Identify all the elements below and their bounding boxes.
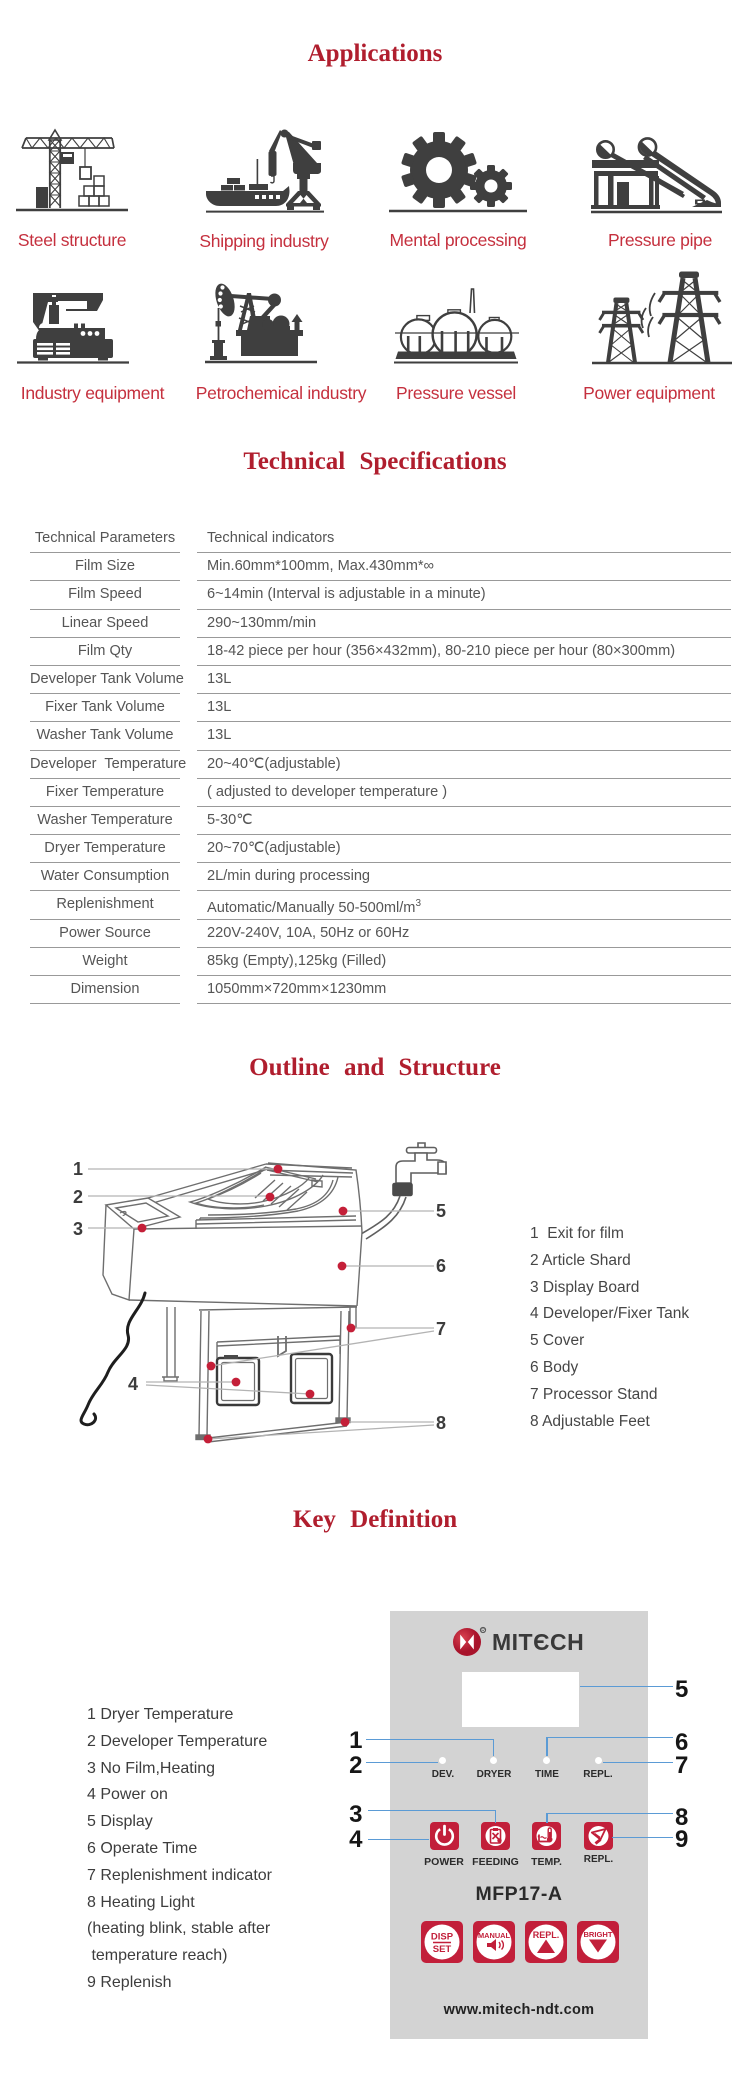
svg-text:R: R	[481, 1628, 485, 1634]
svg-text:MANUAL: MANUAL	[478, 1931, 511, 1940]
svg-text:7: 7	[436, 1319, 446, 1339]
svg-text:5: 5	[436, 1201, 446, 1221]
svg-text:1: 1	[73, 1159, 83, 1179]
svg-text:2: 2	[73, 1187, 83, 1207]
svg-text:SET: SET	[433, 1944, 452, 1955]
svg-text:3: 3	[73, 1219, 83, 1239]
svg-text:DISP: DISP	[431, 1931, 454, 1942]
svg-text:4: 4	[128, 1374, 138, 1394]
svg-text:8: 8	[436, 1413, 446, 1433]
svg-text:BRIGHT: BRIGHT	[583, 1930, 612, 1939]
svg-text:REPL.: REPL.	[533, 1930, 560, 1940]
svg-text:6: 6	[436, 1256, 446, 1276]
